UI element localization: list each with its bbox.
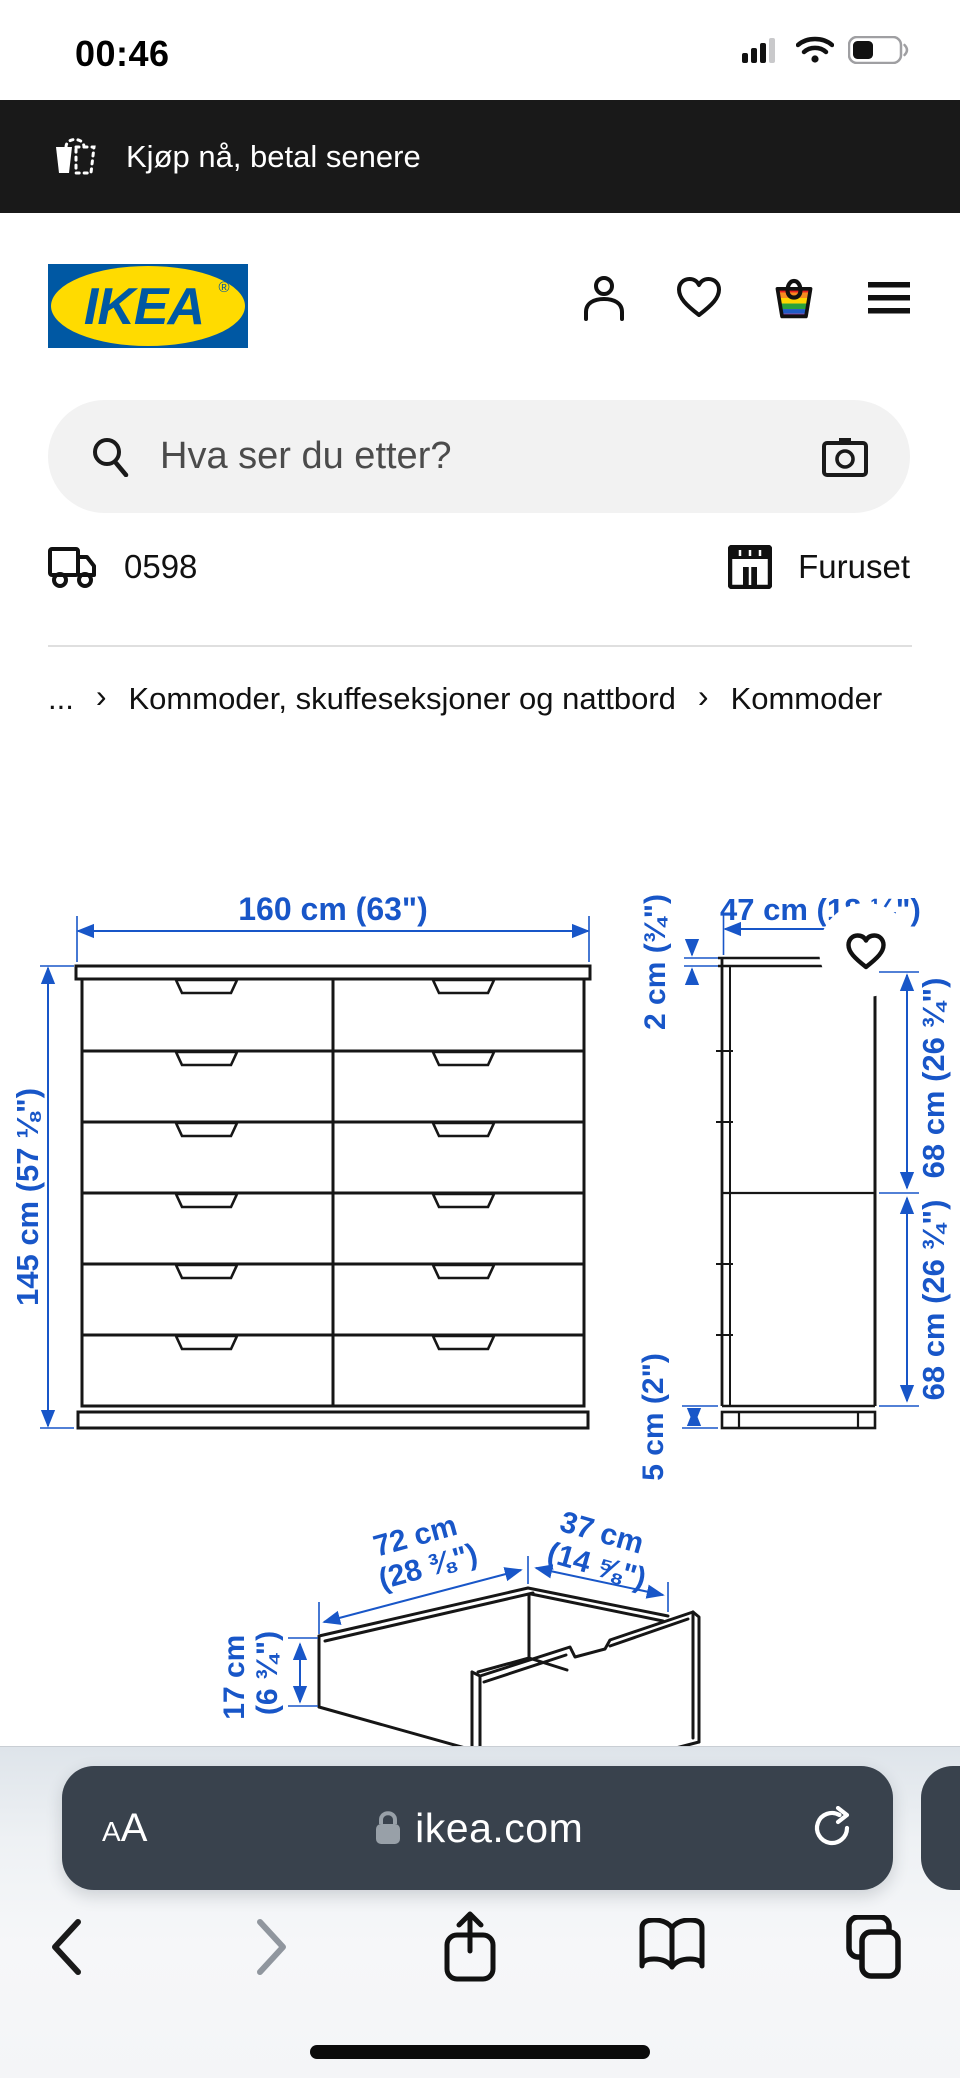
side-section-dimensions [879,972,919,1406]
share-button[interactable] [425,1897,515,1997]
person-icon [582,275,626,321]
battery-icon [848,36,910,64]
drawer-depth-label: 37 cm (14 ⅝") [544,1504,659,1595]
search-placeholder: Hva ser du etter? [160,435,822,478]
shopping-bag-rainbow-icon [771,274,817,322]
menu-button[interactable] [866,275,912,321]
wifi-icon [796,36,834,64]
site-header: IKEA ® [0,213,960,363]
safari-toolbar [0,1897,960,2007]
favourites-button[interactable] [676,275,722,321]
front-width-label: 160 cm (63") [238,891,428,927]
breadcrumb-item-category[interactable]: Kommoder, skuffeseksjoner og nattbord [129,681,676,717]
delivery-truck-icon [48,545,98,589]
hamburger-menu-icon [868,281,910,315]
product-dimensions-diagram: 160 cm (63") 145 cm (57 ⅛") 47 cm (18 ¼"… [0,860,960,1748]
favourite-button[interactable] [819,903,913,997]
front-view-dimensions [40,916,589,1428]
back-button[interactable] [21,1897,111,1997]
side-upper-section-label: 68 cm (26 ¾") [916,978,951,1179]
side-plinth-dimension [682,1406,718,1428]
search-input[interactable]: Hva ser du etter? [48,400,910,513]
text-size-large-a: A [121,1806,148,1851]
front-height-label: 145 cm (57 ⅛") [10,1088,45,1306]
section-divider [48,645,912,647]
status-clock: 00:46 [75,33,170,75]
buy-now-pay-later-icon [50,133,102,181]
search-icon [90,437,130,477]
side-top-thickness-label: 2 cm (¾") [639,894,672,1030]
breadcrumb: ... › Kommoder, skuffeseksjoner og nattb… [48,680,912,717]
home-indicator[interactable] [310,2045,650,2059]
account-button[interactable] [581,275,627,321]
text-size-button[interactable]: AA [102,1806,147,1851]
address-bar[interactable]: AA ikea.com [62,1766,893,1890]
side-plinth-label: 5 cm (2") [637,1353,670,1481]
front-view-drawing [76,966,590,1428]
reload-icon[interactable] [811,1806,855,1850]
lock-icon [375,1811,401,1845]
registered-trademark: ® [218,279,229,296]
store-name-label: Furuset [798,548,910,586]
promo-banner-text: Kjøp nå, betal senere [126,139,421,175]
store-icon [728,545,772,589]
ikea-logo-text: IKEA [84,278,204,336]
ikea-logo[interactable]: IKEA ® [48,264,248,348]
promo-banner[interactable]: Kjøp nå, betal senere [0,100,960,213]
breadcrumb-item-current[interactable]: Kommoder [731,681,883,717]
cellular-signal-icon [742,36,782,64]
text-size-small-a: A [102,1816,121,1848]
drawer-handle-notches [176,980,494,1349]
status-bar: 00:46 [0,0,960,100]
side-lower-section-label: 68 cm (26 ¾") [916,1200,951,1401]
camera-icon[interactable] [822,437,868,477]
url-text: ikea.com [415,1805,583,1852]
forward-button[interactable] [227,1897,317,1997]
cart-button[interactable] [771,275,817,321]
store-selector-button[interactable]: Furuset [728,545,910,589]
delivery-postcode-button[interactable]: 0598 [48,545,197,589]
chevron-right-icon: › [96,678,107,715]
chevron-left-icon [49,1918,83,1976]
postcode-label: 0598 [124,548,197,586]
bookmarks-button[interactable] [627,1897,717,1997]
tabs-button[interactable] [823,1897,913,1997]
heart-icon [676,277,722,319]
side-view-drawing [716,958,875,1428]
share-icon [443,1911,497,1983]
tabs-icon [835,1915,901,1979]
drawer-height-label: 17 cm (6 ¾") [218,1626,284,1719]
safari-bottom-chrome: AA ikea.com [0,1746,960,2078]
drawer-width-label: 72 cm (28 ⅜") [366,1506,481,1597]
next-tab-peek[interactable] [921,1766,960,1890]
chevron-right-icon [255,1918,289,1976]
side-top-thickness-dimension [684,941,718,983]
open-book-icon [638,1918,706,1976]
drawer-box-drawing [319,1588,699,1748]
iphone-safari-screen: 00:46 Kjøp nå [0,0,960,2078]
breadcrumb-ellipsis[interactable]: ... [48,681,74,717]
chevron-right-icon: › [698,678,709,715]
